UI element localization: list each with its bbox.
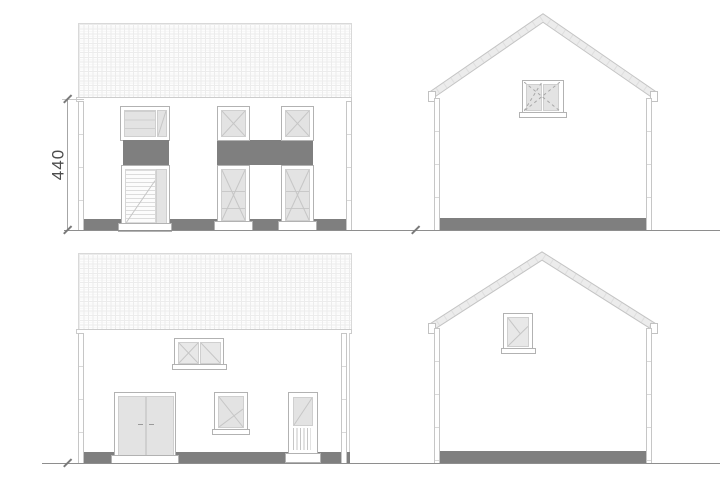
elevation-sheet: 440	[0, 0, 720, 480]
dimension-440: 440	[0, 0, 720, 480]
dimension-label: 440	[50, 145, 67, 185]
